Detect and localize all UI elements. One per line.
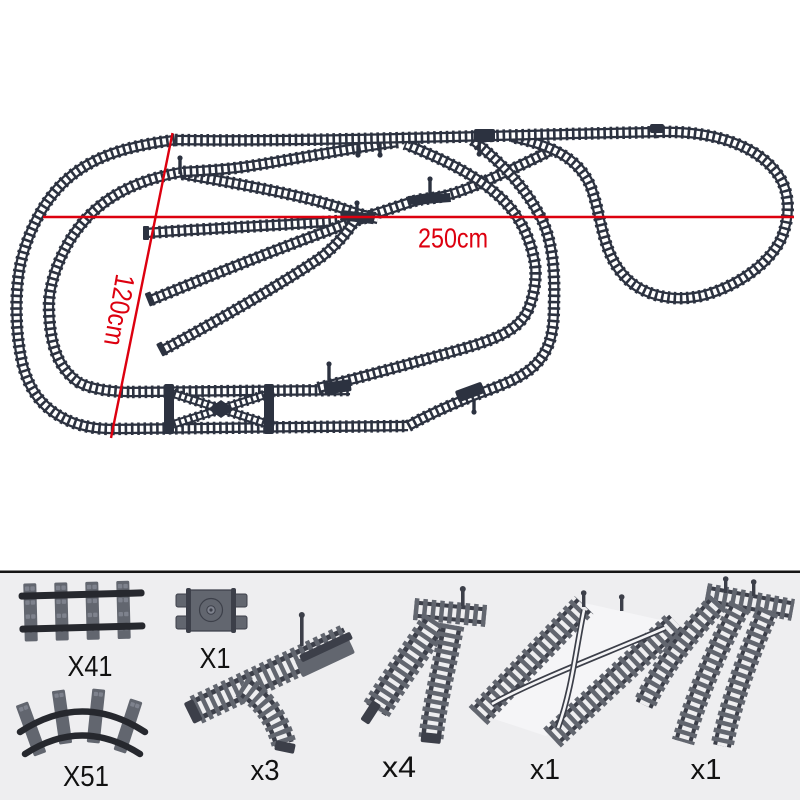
svg-text:X41: X41 — [68, 651, 113, 683]
svg-text:X51: X51 — [63, 761, 109, 793]
svg-text:x4: x4 — [382, 751, 416, 784]
svg-text:X1: X1 — [200, 643, 231, 675]
svg-text:x3: x3 — [251, 755, 280, 787]
svg-text:250cm: 250cm — [418, 223, 488, 254]
svg-text:x1: x1 — [691, 754, 722, 786]
svg-text:x1: x1 — [530, 754, 560, 786]
